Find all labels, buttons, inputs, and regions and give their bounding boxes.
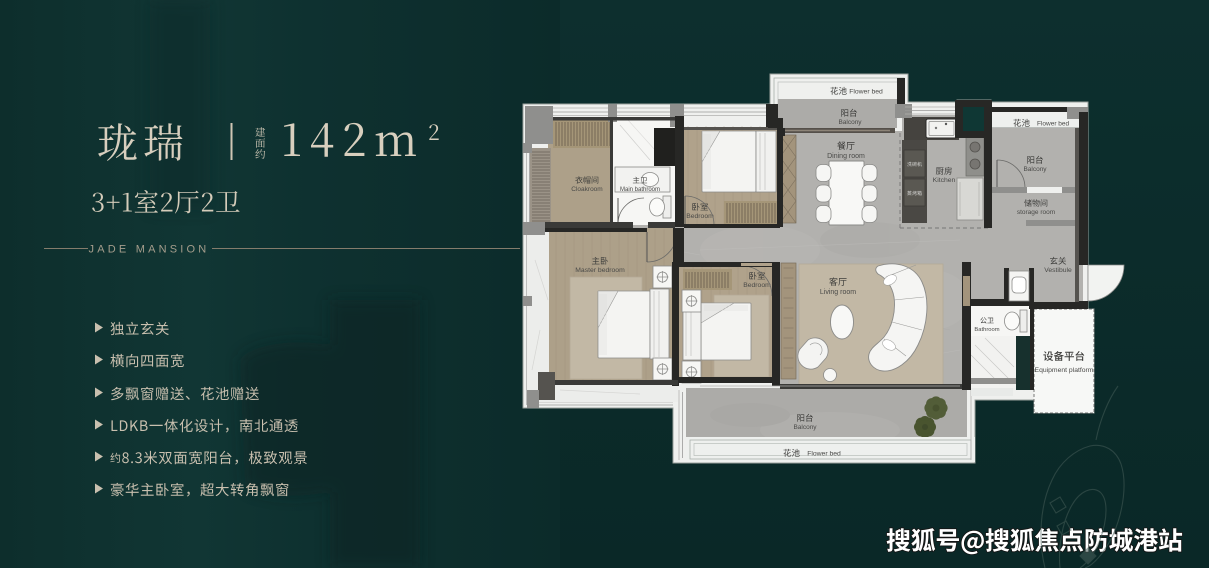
svg-text:Living room: Living room (820, 289, 856, 296)
svg-text:Flower bed: Flower bed (807, 451, 841, 458)
svg-text:Kitchen: Kitchen (933, 177, 956, 184)
svg-text:Vestibule: Vestibule (1044, 267, 1072, 274)
svg-text:Dining room: Dining room (827, 153, 865, 160)
svg-text:Balcony: Balcony (1023, 166, 1047, 173)
svg-text:Cloakroom: Cloakroom (571, 186, 602, 193)
svg-text:Bedroom: Bedroom (686, 213, 714, 220)
svg-text:Main bathroom: Main bathroom (620, 187, 660, 193)
svg-text:Balcony: Balcony (793, 424, 817, 431)
svg-text:Master bedroom: Master bedroom (575, 267, 625, 274)
svg-text:Bedroom: Bedroom (743, 282, 771, 289)
svg-text:Flower bed: Flower bed (1037, 121, 1070, 128)
svg-text:Balcony: Balcony (838, 119, 862, 126)
svg-text:JADE MANSION: JADE MANSION (89, 244, 210, 256)
svg-text:Equipment platform: Equipment platform (1035, 367, 1094, 374)
svg-text:Bathroom: Bathroom (974, 327, 999, 333)
svg-text:Flower bed: Flower bed (849, 89, 883, 96)
svg-text:storage room: storage room (1017, 209, 1055, 216)
